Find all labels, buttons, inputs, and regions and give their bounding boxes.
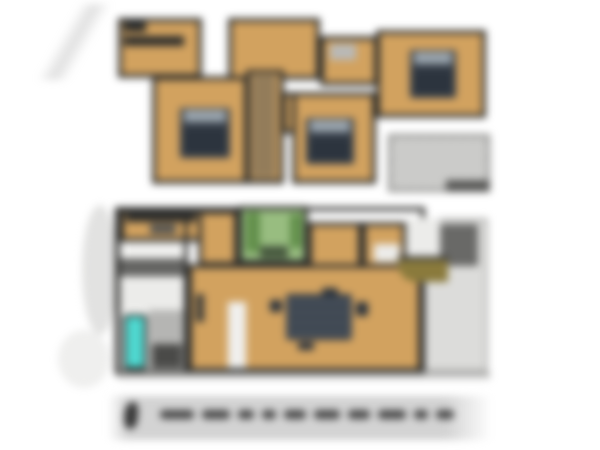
blurred-layer <box>0 0 600 450</box>
ground-floor-plan <box>113 205 493 385</box>
caption-word <box>314 410 340 419</box>
plant <box>290 214 302 248</box>
stairs <box>252 74 276 178</box>
hall-gray-patch <box>330 44 356 60</box>
logo-icon <box>122 401 140 430</box>
caption-word <box>348 410 370 419</box>
chair <box>270 300 282 312</box>
chair <box>298 342 314 350</box>
bed-pillow <box>310 120 350 132</box>
olive-counter <box>398 256 448 282</box>
caption-word <box>160 410 194 419</box>
rug-furniture <box>260 246 288 258</box>
bed-blanket <box>414 70 452 94</box>
white-furniture <box>374 244 400 262</box>
dining-table <box>286 294 352 340</box>
caption-word <box>414 410 428 419</box>
scene <box>0 0 600 450</box>
caption-word <box>262 410 276 419</box>
caption-word <box>238 410 254 419</box>
left-wing-wall <box>116 208 188 374</box>
bed-blanket <box>184 128 226 154</box>
caption-word <box>436 410 454 419</box>
wall-shelf <box>196 294 204 322</box>
chair <box>322 288 338 296</box>
caption-word <box>202 410 230 419</box>
plant <box>246 212 260 252</box>
deck-dark-strip <box>446 180 490 192</box>
doorway <box>228 302 246 368</box>
hallway <box>198 210 238 266</box>
caption-word <box>284 410 306 419</box>
caption-bar <box>108 396 492 440</box>
upper-floor-plan <box>113 14 493 199</box>
bed-blanket <box>310 138 350 160</box>
background-smudge <box>58 330 110 388</box>
bed-pillow <box>414 52 452 64</box>
caption-text-blur <box>160 410 454 419</box>
furniture <box>124 22 146 32</box>
chair <box>356 302 368 316</box>
room <box>308 222 362 268</box>
furniture <box>124 36 184 46</box>
bed-pillow <box>184 110 226 122</box>
bottom-shadow <box>118 372 490 381</box>
caption-word <box>378 410 406 419</box>
